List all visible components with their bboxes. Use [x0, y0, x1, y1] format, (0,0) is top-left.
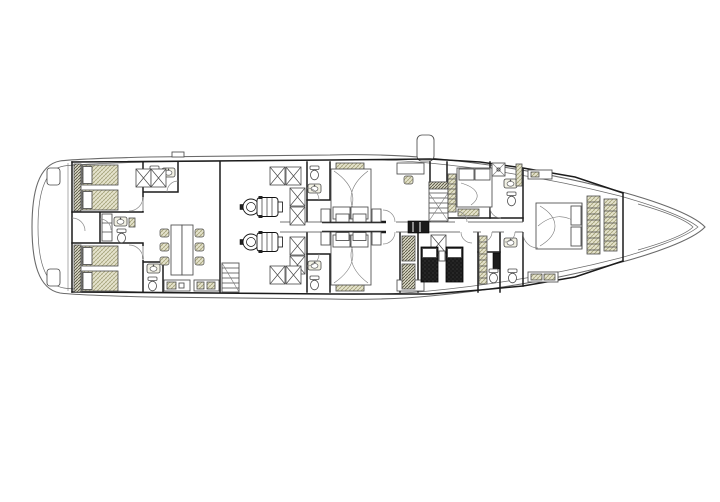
pillow: [83, 248, 92, 265]
pillow: [83, 273, 92, 290]
galley-stove: [179, 283, 184, 288]
door-arc: [129, 197, 143, 211]
pillow: [448, 249, 462, 258]
nightstand: [372, 209, 381, 222]
vip-cabin: [448, 168, 492, 216]
sink: [504, 179, 517, 188]
wardrobe: [402, 236, 415, 261]
pillow: [571, 206, 581, 225]
pillow: [83, 167, 92, 184]
forward-bathrooms: [479, 236, 517, 284]
crew-cabin: [421, 247, 463, 282]
headboard-cabinet: [74, 164, 81, 211]
bath-cabinet: [516, 164, 522, 186]
toilet: [117, 229, 126, 243]
dresser-top: [531, 172, 539, 177]
toilet: [310, 276, 319, 290]
toilet: [310, 166, 319, 180]
bath-cabinet: [493, 253, 500, 269]
deck-plan-drawing: [0, 0, 720, 502]
door-arc: [461, 232, 472, 243]
desk: [397, 163, 424, 174]
dining-chair: [160, 257, 169, 265]
deck-hatch: [417, 135, 434, 161]
galley-sink: [197, 282, 204, 289]
door-arc: [490, 207, 501, 218]
toilet: [489, 269, 498, 283]
sink: [147, 264, 160, 273]
dining-table: [171, 225, 182, 275]
bed-step: [336, 233, 349, 241]
sink: [114, 217, 127, 226]
desk-chair: [404, 176, 413, 184]
door-arc: [72, 218, 85, 231]
vanity: [129, 218, 135, 227]
headboard-cabinet: [74, 245, 81, 292]
toilet: [508, 269, 517, 283]
bed-step: [353, 233, 366, 241]
wardrobe-tower: [604, 199, 617, 251]
wardrobe-tower: [587, 196, 600, 254]
bench-cushion: [531, 274, 542, 280]
galley-sink: [167, 282, 176, 289]
aft-port-twin-cabin: [74, 164, 118, 211]
galley: [164, 280, 219, 291]
skylight-hatch: [151, 169, 166, 187]
door-arc: [129, 245, 143, 259]
sink: [504, 238, 517, 247]
fuel-tank: [290, 207, 305, 225]
fuel-tank: [290, 237, 305, 255]
galley-appliance: [207, 282, 215, 289]
bed-step: [336, 214, 349, 222]
corridor-sideboard: [408, 221, 429, 233]
dining-chair: [160, 229, 169, 237]
fuel-tank: [286, 167, 301, 185]
wardrobe: [402, 264, 415, 289]
nightstand: [321, 209, 330, 222]
pillow: [571, 227, 581, 246]
bed-step: [353, 214, 366, 222]
wardrobe: [448, 174, 456, 212]
starboard-guest-cabin: [321, 232, 424, 291]
dining-table: [182, 225, 193, 275]
aft-starboard-twin-cabin: [74, 245, 118, 292]
stern-locker-top: [47, 168, 60, 185]
pillow: [459, 169, 474, 180]
dining-chair: [160, 243, 169, 251]
guest-bath-walls: [307, 162, 330, 292]
deck-plan-page: [0, 0, 720, 502]
door-arc: [167, 181, 178, 192]
door-arc: [383, 210, 395, 222]
toilet: [507, 192, 516, 206]
nightstand: [439, 251, 445, 261]
nightstand: [372, 232, 381, 245]
dining-chair: [195, 229, 204, 237]
pillow: [423, 249, 437, 258]
aft-starboard-bathroom: [147, 264, 160, 291]
dining-chair: [195, 257, 204, 265]
port-guest-bathroom: [308, 166, 321, 193]
toilet: [148, 277, 157, 291]
stern-locker-bottom: [47, 269, 60, 286]
nightstand: [321, 232, 330, 245]
vip-bathroom: [492, 163, 522, 206]
engine-port: [240, 196, 283, 218]
fuel-tank: [286, 266, 301, 284]
salon-staircase: [222, 263, 239, 292]
pillow: [83, 192, 92, 209]
engine-starboard: [240, 231, 283, 253]
midship-staircase: [429, 182, 448, 253]
port-guest-cabin: [321, 163, 424, 222]
deck-step: [172, 152, 184, 157]
door-arc: [383, 232, 395, 244]
fuel-tank: [270, 266, 285, 284]
skylight-hatch: [136, 169, 151, 187]
bench-cushion: [544, 274, 555, 280]
fuel-tank: [290, 188, 305, 206]
engine-room: [240, 167, 305, 284]
stair-landing: [429, 182, 448, 189]
pillow: [475, 169, 490, 180]
fuel-tank: [270, 167, 285, 185]
central-bathroom: [102, 214, 135, 243]
corridor-thick-walls: [322, 222, 386, 232]
corridor: [408, 221, 429, 233]
dining-chair: [195, 243, 204, 251]
corridor-walls: [280, 222, 523, 232]
